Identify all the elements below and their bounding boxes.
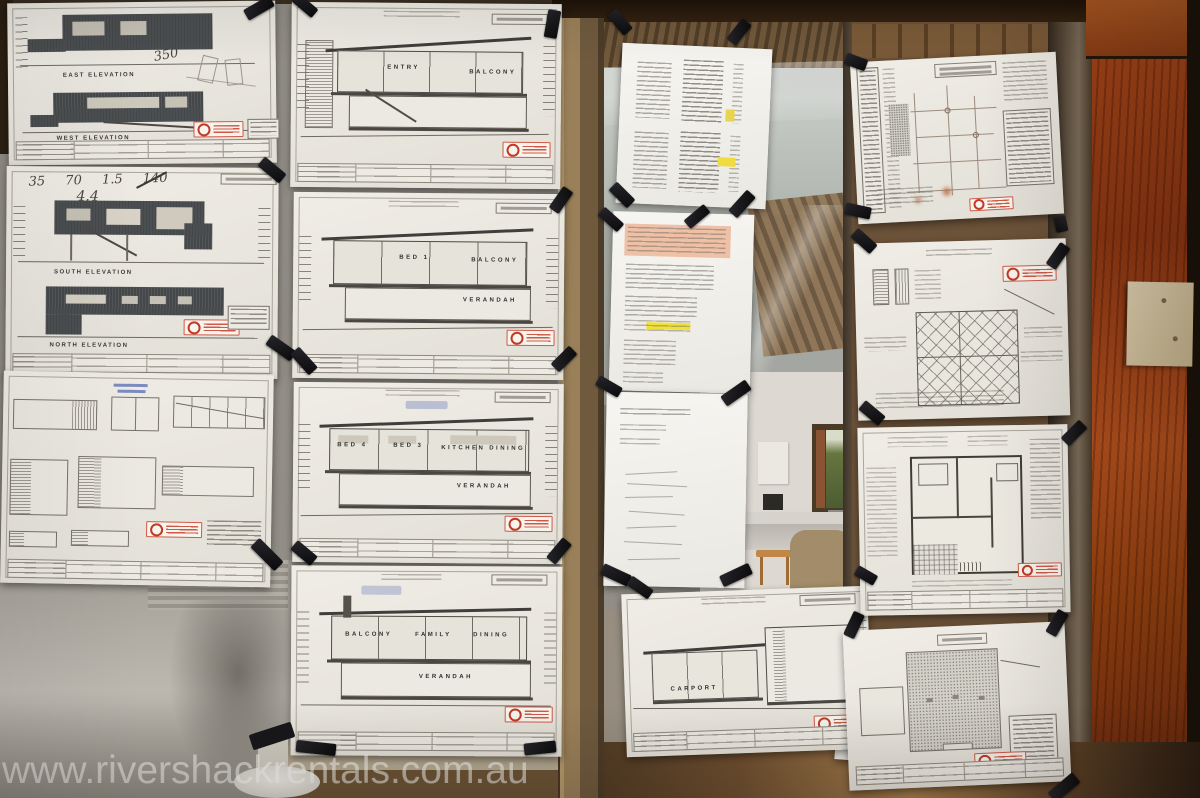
pipe-line xyxy=(914,93,920,193)
window-elevation xyxy=(77,456,156,509)
room-label: ENTRY xyxy=(387,65,420,71)
chimney-flue xyxy=(343,596,351,618)
pencil-working xyxy=(625,471,677,475)
title-block xyxy=(7,559,263,582)
leader-line xyxy=(1000,660,1040,668)
blue-annotation xyxy=(114,384,148,388)
top-note xyxy=(384,11,460,21)
printed-line xyxy=(620,424,666,431)
text-column xyxy=(635,61,671,118)
printed-heading xyxy=(620,408,690,417)
pane-divider xyxy=(135,398,137,430)
sheet-deck-plan xyxy=(843,621,1072,791)
dimension-ticks xyxy=(545,426,558,496)
room-label: BED 3 xyxy=(393,443,423,449)
room-label: BED 1 xyxy=(399,255,429,261)
stamp-logo-circle xyxy=(188,321,201,334)
window-elevation xyxy=(173,396,266,430)
room-label: DINING xyxy=(473,632,509,638)
stamp-text-lines xyxy=(525,711,549,719)
dimension-ticks xyxy=(544,613,556,685)
legend-lines xyxy=(231,309,267,327)
post-mark xyxy=(927,698,933,702)
yellow-highlight xyxy=(725,109,735,121)
note-right-2 xyxy=(1021,350,1063,361)
notes-column-right xyxy=(1030,438,1061,519)
stamp-logo-circle xyxy=(509,708,522,721)
lower-level-outline xyxy=(339,473,531,507)
detail-notes xyxy=(914,270,941,303)
side-detail xyxy=(859,686,905,736)
top-note xyxy=(389,201,459,211)
plan-title-box xyxy=(934,61,997,78)
schedule-table-right xyxy=(1003,108,1055,186)
pencil-working xyxy=(624,541,682,545)
pencil-working xyxy=(625,496,673,498)
stamp-logo-circle xyxy=(1022,564,1033,575)
stair-treads xyxy=(960,562,982,571)
text-column xyxy=(678,131,721,193)
east-elevation-drawing xyxy=(62,13,212,51)
stamp-logo-circle xyxy=(973,199,985,211)
stamp-logo-circle xyxy=(509,517,522,530)
fixture-dot xyxy=(944,107,950,113)
legend-lines xyxy=(250,122,276,136)
notes-right-top xyxy=(1002,60,1048,102)
stamp-text-lines xyxy=(213,125,239,133)
bronze-mullion xyxy=(560,18,604,798)
stamp-text-lines xyxy=(527,334,551,342)
elevation-label: SOUTH ELEVATION xyxy=(54,269,133,276)
pipe-line xyxy=(916,133,994,138)
sheet-elevations-east-west: EAST ELEVATION 350 WEST ELEVATION xyxy=(7,1,277,166)
stamp-logo-circle xyxy=(150,523,163,536)
window-elevation xyxy=(71,530,129,547)
window-slot xyxy=(178,296,192,304)
room-label: DINING xyxy=(489,446,525,452)
south-elevation-wing xyxy=(184,223,212,249)
photo-of-plans-taped-to-window: EAST ELEVATION 350 WEST ELEVATION 35 70 … xyxy=(0,0,1200,798)
window-opening xyxy=(66,208,90,220)
pipe-line xyxy=(974,96,980,188)
sheet-ref-label xyxy=(495,392,551,403)
sheet-bracing-plan xyxy=(854,238,1071,420)
south-elevation-upper xyxy=(54,200,204,235)
grid-block xyxy=(888,104,911,157)
hatched-pane xyxy=(163,466,183,494)
kitchen-upper-cabinet xyxy=(758,442,788,484)
dimension-ticks xyxy=(297,44,310,114)
annotation-top xyxy=(888,436,948,447)
stamp-text-lines xyxy=(1022,269,1052,278)
north-elevation-drawing xyxy=(46,286,224,315)
notes-bottom xyxy=(877,186,934,205)
lower-level-outline xyxy=(345,287,531,321)
title-block xyxy=(297,163,553,184)
pencil-working xyxy=(628,558,680,560)
highlighted-text xyxy=(627,227,726,256)
stamp-text-lines xyxy=(166,526,198,535)
detail-hatched-2 xyxy=(894,268,909,304)
annotation-top-2 xyxy=(968,435,1008,446)
certifier-stamp xyxy=(502,142,550,158)
pencil-working xyxy=(629,511,685,516)
window-in-section xyxy=(450,435,516,445)
glazing-band xyxy=(87,97,159,109)
blue-annotation xyxy=(118,390,146,393)
carport-outline xyxy=(651,650,759,702)
dimension-ticks xyxy=(13,206,25,261)
note-left xyxy=(864,336,906,351)
kitchen-window-brick xyxy=(816,430,825,508)
bottom-notes xyxy=(876,390,1004,409)
annotation-left xyxy=(866,467,898,558)
small-room xyxy=(918,463,948,486)
dimension-ticks xyxy=(543,46,556,116)
sheet-section-bed1: BED 1 BALCONY VERANDAH xyxy=(292,192,565,380)
pencil-working xyxy=(627,483,687,487)
top-right-orange-beam xyxy=(1086,0,1200,59)
paragraph xyxy=(623,371,663,384)
step-notch xyxy=(943,742,973,750)
top-note xyxy=(381,574,441,582)
text-column xyxy=(632,131,668,188)
sheet-floor-plan xyxy=(857,424,1070,616)
west-elevation-drawing xyxy=(53,91,203,123)
window-opening xyxy=(120,21,146,35)
room-label: VERANDAH xyxy=(457,483,511,489)
pipe-line xyxy=(913,159,1001,165)
paragraph xyxy=(623,340,676,367)
red-timber-post xyxy=(1092,16,1187,798)
top-note xyxy=(386,390,460,400)
window-opening xyxy=(106,209,140,225)
certifier-stamp xyxy=(146,521,202,538)
title-block xyxy=(856,757,1065,785)
stamp-text-lines xyxy=(987,199,1009,208)
internal-wall xyxy=(956,458,959,518)
small-room xyxy=(996,463,1018,481)
sheet-services-plan xyxy=(850,52,1064,225)
printed-line xyxy=(620,438,660,445)
timber-grain xyxy=(1092,16,1187,798)
dimension-ticks xyxy=(297,611,309,683)
top-note xyxy=(926,248,992,258)
sheet-ref-label xyxy=(492,14,548,25)
wall-hatch xyxy=(773,629,788,701)
plan-title-box xyxy=(937,633,987,646)
certifier-stamp xyxy=(1018,562,1062,577)
certifier-stamp xyxy=(969,196,1014,211)
detail-hatched-1 xyxy=(872,269,889,305)
pine-block xyxy=(1126,281,1193,366)
dimension-ticks xyxy=(15,17,28,69)
sheet-section-carport: CARPORT xyxy=(621,586,873,757)
text-column xyxy=(681,59,724,123)
room-label: VERANDAH xyxy=(419,674,473,680)
room-label: BALCONY xyxy=(469,69,516,75)
window-elevation xyxy=(162,465,255,497)
stamp-text-lines xyxy=(1036,565,1058,573)
certifier-stamp xyxy=(193,121,243,138)
hatched-pane xyxy=(72,401,96,429)
pencil-working xyxy=(626,526,676,529)
sheet-window-schedule xyxy=(0,371,274,588)
paragraph xyxy=(625,264,714,292)
title-block xyxy=(867,588,1063,610)
dimension-ticks xyxy=(298,424,311,494)
dimension-ticks xyxy=(258,208,270,263)
sheet-section-beds-kitchen: BED 4 BED 3 KITCHEN DINING VERANDAH xyxy=(292,382,564,564)
lower-level-outline xyxy=(349,95,527,129)
room-label: KITCHEN xyxy=(441,445,485,451)
rust-stain xyxy=(943,187,951,195)
elevation-label: NORTH ELEVATION xyxy=(49,342,128,349)
legend-box xyxy=(247,119,279,139)
title-block xyxy=(16,139,270,161)
title-block xyxy=(299,538,555,559)
room-label: BED 4 xyxy=(337,442,367,448)
post xyxy=(70,234,72,260)
note-right xyxy=(1024,326,1062,337)
certifier-stamp xyxy=(506,330,554,346)
table-rows xyxy=(1006,111,1052,183)
sheet-ref-label xyxy=(496,203,552,214)
stamp-logo-circle xyxy=(510,331,523,344)
dimension-ticks xyxy=(299,236,312,306)
yellow-highlight xyxy=(717,157,735,167)
sheet-elevations-south-north: 35 70 1.5 140 4.4 SOUTH ELEVATION NORTH … xyxy=(5,166,278,379)
fixture-dot xyxy=(973,132,979,138)
elevation-label: EAST ELEVATION xyxy=(63,72,135,79)
room-label: FAMILY xyxy=(415,632,451,638)
stamp-logo-circle xyxy=(506,143,519,156)
pipe-line xyxy=(946,85,953,195)
coffee-machine xyxy=(763,494,783,510)
post-mark xyxy=(979,696,985,700)
page-calculations xyxy=(603,392,747,588)
window-elevation xyxy=(9,459,68,516)
sheet-ref-label xyxy=(799,593,855,606)
pine-knot-1 xyxy=(1161,298,1166,303)
stamp-logo-circle xyxy=(1006,267,1019,280)
right-edge-dark xyxy=(1187,0,1200,798)
window-opening xyxy=(72,21,104,35)
window-elevation xyxy=(13,399,98,430)
blue-received-stamp xyxy=(406,401,448,409)
east-elevation-wing xyxy=(28,39,66,52)
deck-slab-area xyxy=(906,648,1002,752)
pipe-line xyxy=(911,107,997,112)
north-elevation-lower xyxy=(46,314,82,334)
title-block xyxy=(299,354,556,375)
legend-box xyxy=(228,306,270,330)
page-schedule-list xyxy=(616,43,773,209)
floor-plan-outline xyxy=(910,455,1024,575)
window-slot xyxy=(122,296,138,304)
room-label: VERANDAH xyxy=(463,297,517,303)
watermark-text: www.rivershackrentals.com.au xyxy=(2,749,529,793)
certifier-stamp xyxy=(504,516,552,532)
post-mark xyxy=(953,695,959,699)
hatched-pane xyxy=(79,457,102,507)
paragraph xyxy=(624,320,690,334)
ground-slope-line xyxy=(633,708,861,709)
internal-wall xyxy=(918,355,1018,359)
room-label: BALCONY xyxy=(345,632,392,638)
post xyxy=(126,235,128,261)
stool-legs xyxy=(760,557,792,585)
sheet-section-family: BALCONY FAMILY DINING VERANDAH xyxy=(291,565,563,756)
page-specification xyxy=(609,211,755,394)
tiled-deck-grid xyxy=(913,544,958,575)
hatched-pane xyxy=(72,531,88,545)
blue-received-stamp xyxy=(361,586,401,595)
stamp-text-lines xyxy=(522,146,546,154)
certifier-stamp xyxy=(1002,265,1056,282)
window-elevation xyxy=(9,531,57,548)
internal-wall xyxy=(990,478,993,548)
hatched-pane xyxy=(10,460,31,514)
hatched-pane xyxy=(10,532,24,546)
window-opening xyxy=(165,97,187,108)
window-slot xyxy=(66,294,106,303)
paragraph xyxy=(625,296,697,318)
window-slot xyxy=(150,296,166,304)
sheet-section-entry: ENTRY BALCONY xyxy=(290,2,562,189)
dimension-ticks xyxy=(546,238,559,308)
room-label: BALCONY xyxy=(471,257,518,263)
internal-wall xyxy=(913,515,993,518)
window-elevation xyxy=(111,397,160,432)
stamp-logo-circle xyxy=(197,123,210,136)
stamp-text-lines xyxy=(525,520,549,528)
certifier-stamp xyxy=(505,706,553,722)
sheet-ref-label xyxy=(491,574,547,585)
west-elevation-annex xyxy=(30,115,58,127)
pine-knot-2 xyxy=(1173,336,1178,341)
